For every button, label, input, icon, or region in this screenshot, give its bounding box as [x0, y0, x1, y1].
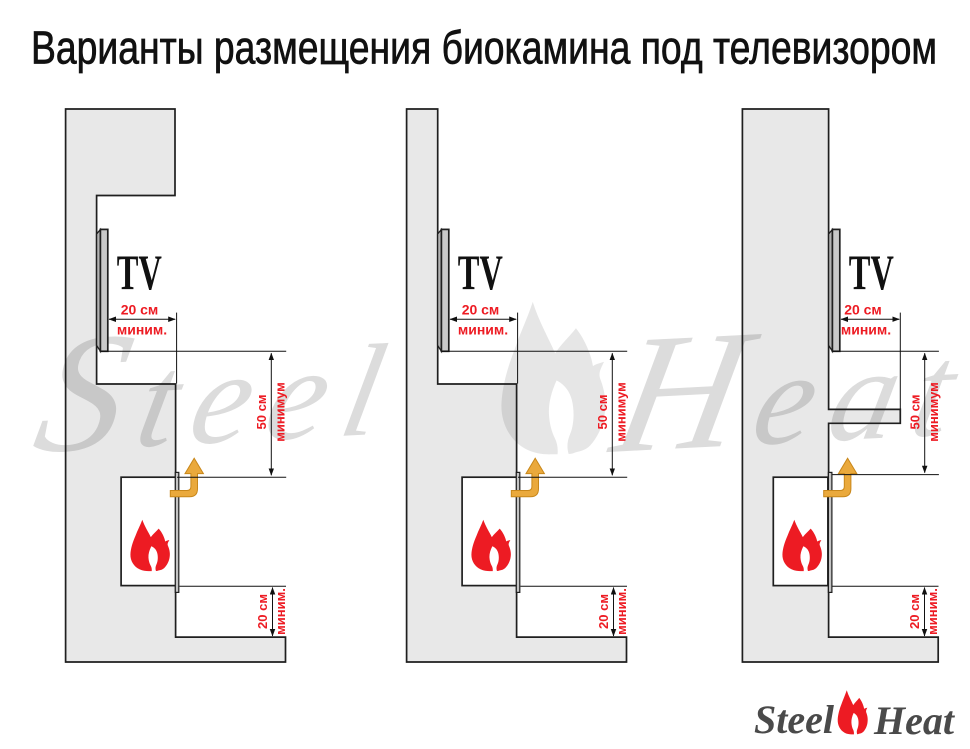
svg-text:минимум: минимум	[273, 382, 288, 442]
svg-text:миним.: миним.	[925, 588, 940, 635]
svg-text:миним.: миним.	[614, 588, 629, 635]
svg-text:TV: TV	[849, 246, 894, 300]
svg-text:20 см: 20 см	[907, 594, 922, 629]
svg-text:20 см: 20 см	[844, 302, 882, 318]
svg-text:20 см: 20 см	[462, 302, 500, 318]
svg-text:TV: TV	[117, 246, 162, 300]
svg-text:50 см: 50 см	[595, 395, 610, 430]
svg-text:Steel: Steel	[754, 697, 835, 742]
svg-text:миним.: миним.	[273, 588, 288, 635]
svg-text:Heat: Heat	[873, 698, 956, 743]
svg-text:20 см: 20 см	[121, 302, 159, 318]
svg-text:Варианты размещения биокамина: Варианты размещения биокамина под телеви…	[31, 22, 937, 75]
svg-text:50 см: 50 см	[254, 395, 269, 430]
svg-text:TV: TV	[458, 246, 503, 300]
svg-text:минимум: минимум	[614, 382, 629, 442]
svg-text:20 см: 20 см	[255, 594, 270, 629]
svg-text:20 см: 20 см	[596, 594, 611, 629]
svg-text:минимум: минимум	[926, 382, 941, 442]
svg-text:миним.: миним.	[841, 322, 891, 338]
svg-text:миним.: миним.	[117, 322, 167, 338]
svg-text:50 см: 50 см	[907, 395, 922, 430]
svg-text:миним.: миним.	[458, 322, 508, 338]
